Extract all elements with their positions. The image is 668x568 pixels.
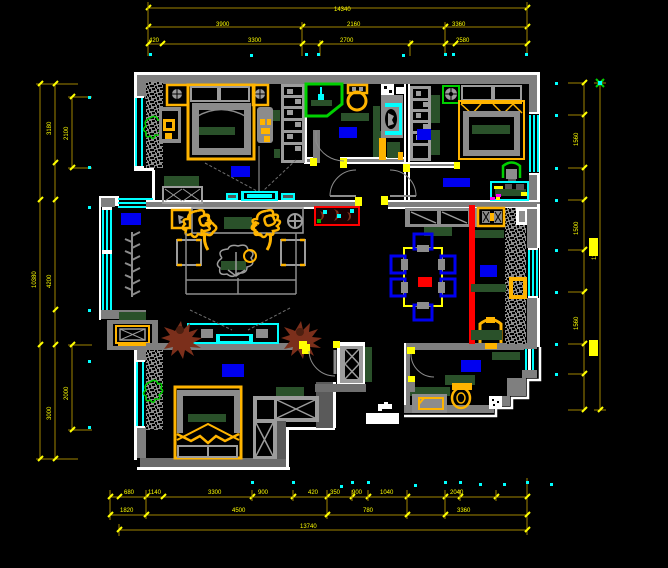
svg-text:420: 420 (149, 38, 160, 44)
svg-text:3900: 3900 (216, 22, 230, 28)
svg-text:1500: 1500 (574, 221, 580, 235)
svg-text:1560: 1560 (574, 316, 580, 330)
svg-text:4200: 4200 (47, 274, 53, 288)
svg-text:1560: 1560 (574, 132, 580, 146)
svg-text:350: 350 (330, 490, 341, 496)
svg-text:2580: 2580 (456, 38, 470, 44)
svg-text:900: 900 (352, 490, 363, 496)
svg-text:3360: 3360 (457, 508, 471, 514)
svg-text:420: 420 (308, 490, 319, 496)
svg-text:14340: 14340 (334, 7, 351, 13)
svg-text:2160: 2160 (347, 22, 361, 28)
svg-text:680: 680 (124, 490, 135, 496)
svg-text:11400: 11400 (592, 243, 598, 260)
svg-text:3360: 3360 (452, 22, 466, 28)
svg-text:1040: 1040 (380, 490, 394, 496)
svg-text:3300: 3300 (208, 490, 222, 496)
svg-text:3300: 3300 (248, 38, 262, 44)
svg-text:2100: 2100 (64, 126, 70, 140)
svg-text:1820: 1820 (120, 508, 134, 514)
svg-text:1140: 1140 (148, 490, 162, 496)
svg-text:13740: 13740 (300, 524, 317, 530)
svg-text:2040: 2040 (450, 490, 464, 496)
svg-text:900: 900 (258, 490, 269, 496)
svg-text:3180: 3180 (47, 121, 53, 135)
svg-text:10380: 10380 (32, 271, 38, 288)
svg-text:2700: 2700 (340, 38, 354, 44)
svg-text:3000: 3000 (47, 406, 53, 420)
svg-text:2000: 2000 (64, 386, 70, 400)
svg-text:780: 780 (363, 508, 374, 514)
svg-text:4500: 4500 (232, 508, 246, 514)
